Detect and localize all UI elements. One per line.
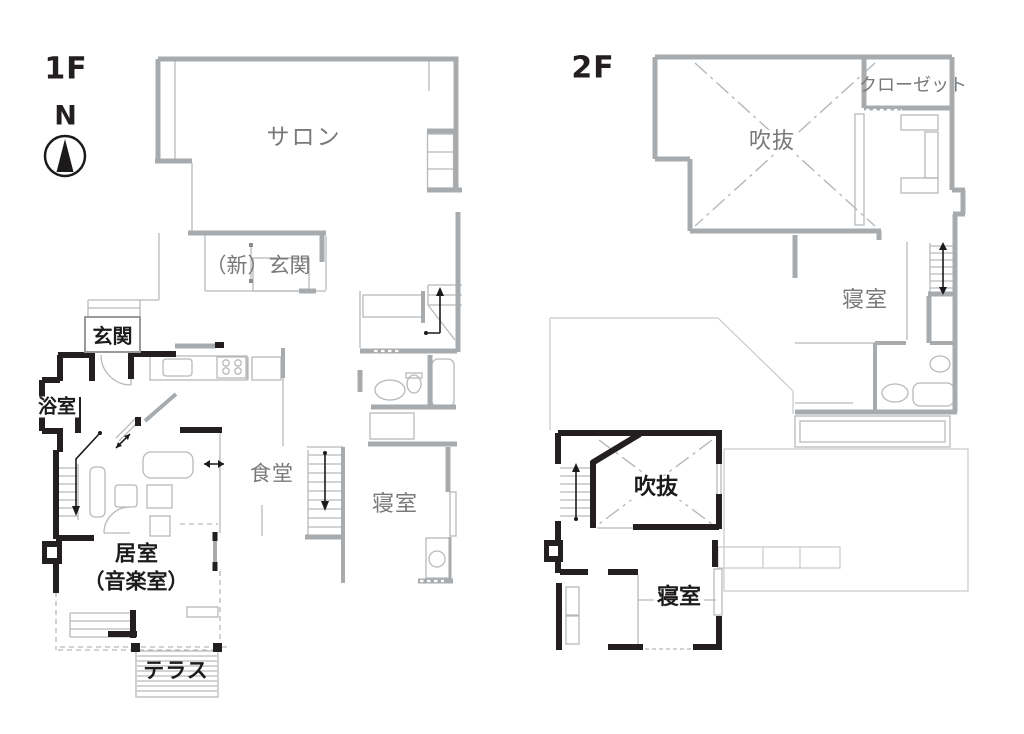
room-label-salon: サロン bbox=[267, 127, 342, 150]
room-label-terrace: テラス bbox=[143, 661, 209, 682]
room-label-living: 居室 bbox=[115, 544, 159, 565]
entrance-label-text: 玄関 bbox=[93, 320, 133, 349]
room-label-entrance: 玄関 bbox=[84, 316, 141, 353]
room-label-bathroom: 浴室 bbox=[35, 397, 79, 418]
f2-stair-arrows bbox=[572, 242, 947, 521]
room-label-bedroom-2f-lower: 寝室 bbox=[654, 586, 704, 610]
floor-title-1f: 1F bbox=[44, 52, 87, 87]
f2-existing-walls bbox=[655, 57, 965, 412]
f2-roof-outline bbox=[550, 318, 968, 591]
compass-north-icon bbox=[45, 136, 85, 176]
room-label-bedroom-1f: 寝室 bbox=[372, 494, 418, 516]
room-label-new-entrance: （新）玄関 bbox=[206, 256, 311, 277]
f2-void-cross-marks bbox=[599, 63, 875, 524]
room-label-void-upper: 吹抜 bbox=[746, 130, 798, 154]
floorplan-drawing bbox=[0, 0, 1024, 734]
f1-new-walls bbox=[42, 345, 224, 652]
room-label-bedroom-2f: 寝室 bbox=[842, 290, 888, 312]
f1-window-dashes bbox=[374, 351, 444, 581]
f1-thin-lines bbox=[58, 60, 462, 697]
north-label: N bbox=[54, 101, 78, 132]
room-label-void-lower: 吹抜 bbox=[631, 476, 681, 500]
room-label-living-sub: （音楽室） bbox=[84, 572, 189, 593]
room-label-dining: 食堂 bbox=[250, 464, 294, 485]
floor-title-2f: 2F bbox=[571, 51, 614, 86]
f2-thin-lines bbox=[560, 114, 956, 647]
f1-plan bbox=[42, 59, 462, 697]
room-label-closet: クローゼット bbox=[859, 77, 967, 95]
floorplan-page: 1F N サロン （新）玄関 玄関 浴室 食堂 寝室 居室 （音楽室） テラス … bbox=[0, 0, 1024, 734]
